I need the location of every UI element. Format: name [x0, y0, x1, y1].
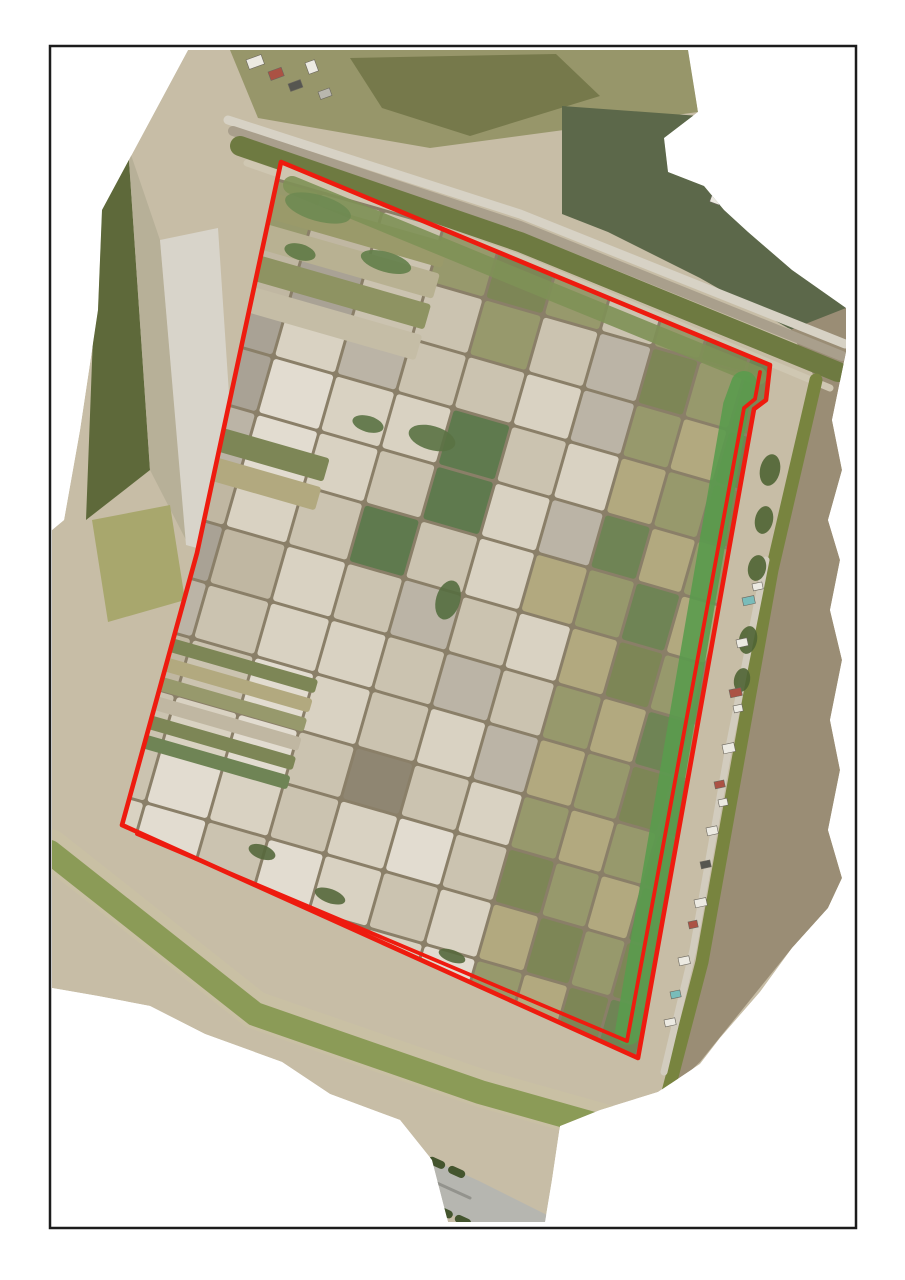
building: [718, 798, 728, 807]
building: [733, 704, 743, 713]
orthomosaic-map: [0, 0, 905, 1280]
building: [688, 920, 698, 929]
screenshot-canvas: [0, 0, 905, 1280]
